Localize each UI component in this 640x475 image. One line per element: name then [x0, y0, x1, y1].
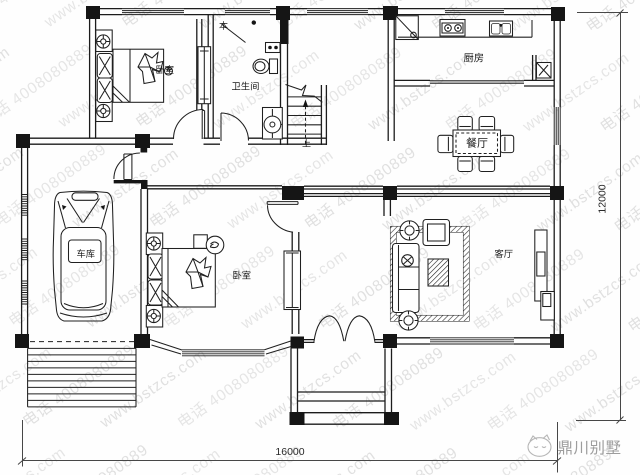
svg-text:16000: 16000 [275, 446, 304, 458]
svg-text:上: 上 [302, 139, 311, 149]
svg-text:卧室: 卧室 [156, 64, 175, 75]
svg-text:12000: 12000 [597, 184, 609, 213]
svg-text:客厅: 客厅 [495, 248, 514, 259]
svg-text:车库: 车库 [77, 248, 96, 259]
svg-text:鼎川别墅: 鼎川别墅 [558, 439, 622, 457]
svg-text:本: 本 [219, 20, 228, 31]
svg-text:卧室: 卧室 [233, 270, 252, 281]
svg-text:厨房: 厨房 [464, 52, 485, 65]
svg-text:卫生间: 卫生间 [232, 81, 260, 92]
svg-text:餐厅: 餐厅 [466, 136, 488, 150]
